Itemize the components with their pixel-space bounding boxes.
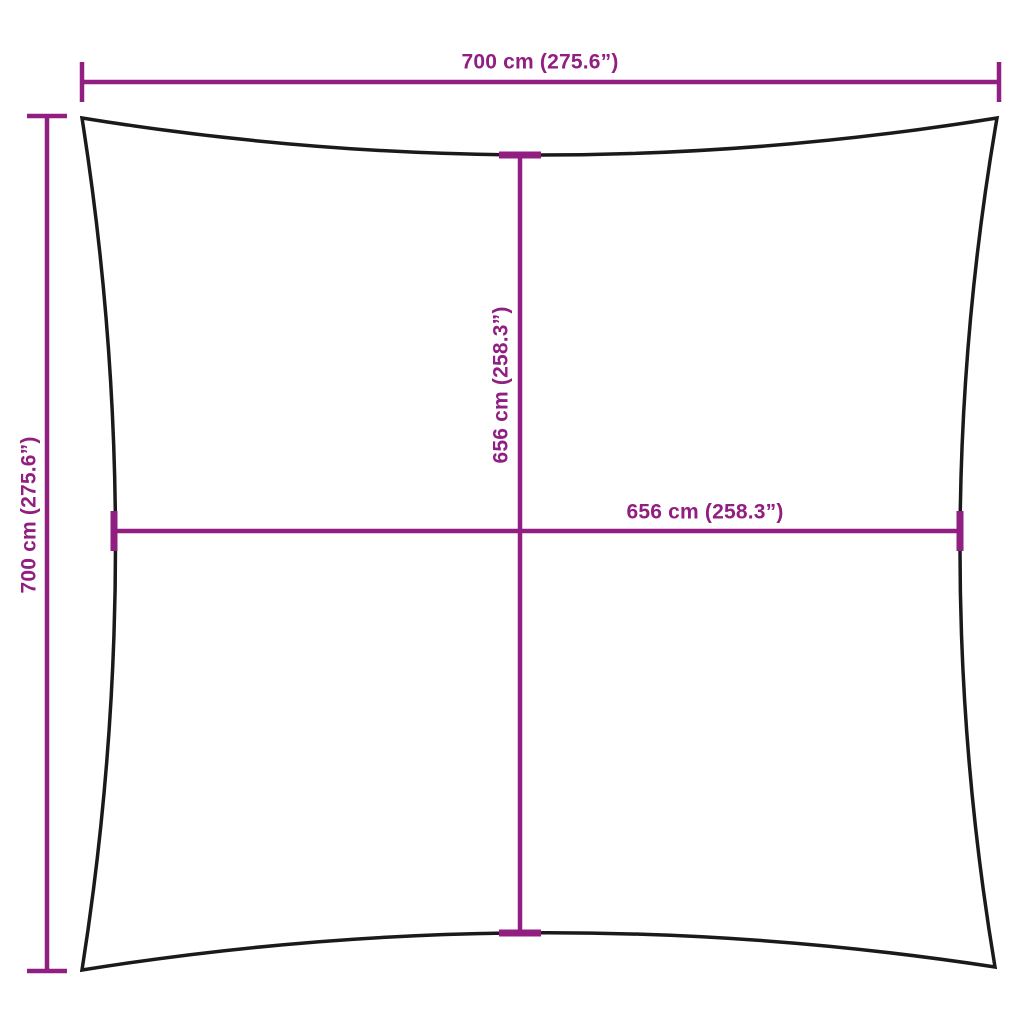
product-dimension-diagram: 700 cm (275.6”) 700 cm (275.6”) 656 cm (… [0,0,1024,1024]
inner-width-dimension [114,511,960,551]
inner-height-dimension [499,155,541,933]
left-height-label: 700 cm (275.6”) [19,436,40,593]
top-width-label: 700 cm (275.6”) [461,52,618,73]
inner-width-label: 656 cm (258.3”) [626,502,783,523]
inner-height-label: 656 cm (258.3”) [491,306,512,463]
sail-outline [82,118,997,970]
diagram-canvas [0,0,1024,1024]
